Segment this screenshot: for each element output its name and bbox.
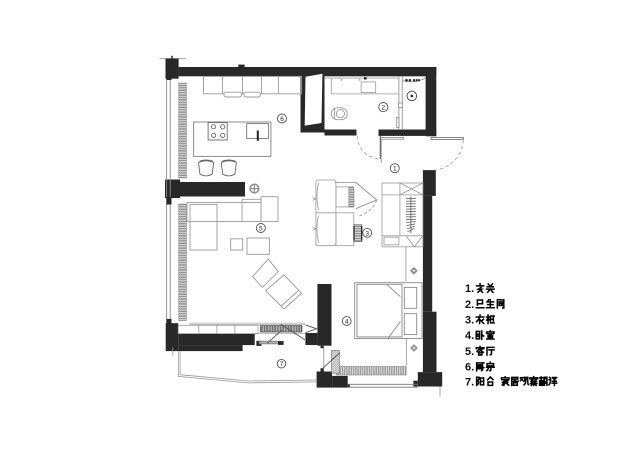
svg-text:7.: 7. xyxy=(465,376,474,388)
svg-text:3.: 3. xyxy=(465,314,474,326)
svg-text:6: 6 xyxy=(280,116,284,123)
svg-text:1.: 1. xyxy=(465,283,474,295)
svg-text:5: 5 xyxy=(259,226,263,233)
svg-text:5.: 5. xyxy=(465,346,474,358)
svg-text:2.: 2. xyxy=(465,299,474,311)
svg-text:6.: 6. xyxy=(465,362,474,374)
svg-text:2: 2 xyxy=(381,105,385,112)
svg-text:7: 7 xyxy=(280,361,284,368)
svg-text:3: 3 xyxy=(365,230,369,237)
svg-text:4.: 4. xyxy=(465,330,474,342)
svg-text:4: 4 xyxy=(345,319,349,326)
svg-text:1: 1 xyxy=(393,166,397,173)
